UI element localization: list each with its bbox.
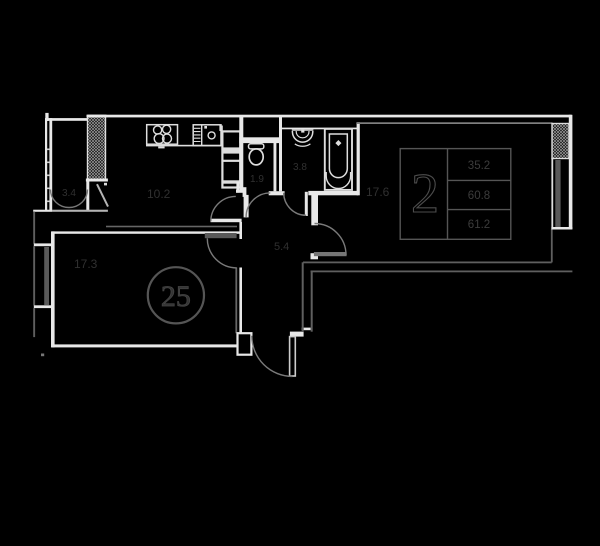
svg-text:3.8: 3.8 [293, 162, 307, 173]
svg-text:35.2: 35.2 [468, 160, 490, 172]
svg-text:17.6: 17.6 [366, 185, 390, 199]
svg-text:3.4: 3.4 [62, 188, 76, 199]
svg-text:10.2: 10.2 [147, 187, 171, 201]
svg-text:17.3: 17.3 [74, 257, 98, 271]
svg-text:2: 2 [411, 163, 439, 225]
svg-text:60.8: 60.8 [468, 190, 490, 202]
svg-text:1.9: 1.9 [250, 174, 264, 185]
svg-text:5.4: 5.4 [274, 241, 289, 253]
svg-text:25: 25 [161, 280, 191, 313]
svg-text:61.2: 61.2 [468, 219, 490, 231]
